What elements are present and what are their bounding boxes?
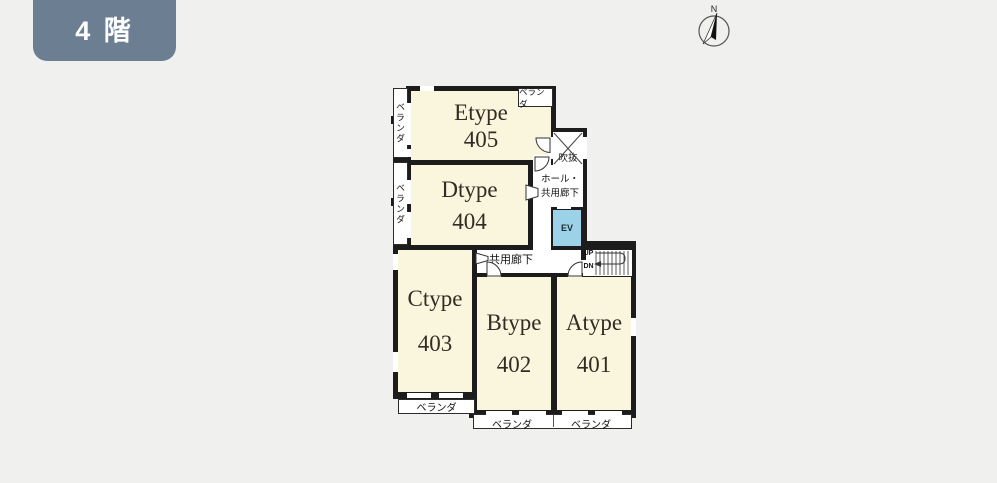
floor-plan: ベランダ ベランダ ベランダ ベランダ ベランダ ベランダ Etype 405 … <box>0 0 997 483</box>
room-401-label: Atype 401 <box>557 277 631 410</box>
hall-label-line1: ホール・ <box>541 173 579 187</box>
void-label: 吹抜 <box>553 150 583 163</box>
window <box>519 411 546 417</box>
room-405-label: Etype 405 <box>411 91 551 160</box>
unit-number: 403 <box>418 332 453 355</box>
window <box>562 411 588 417</box>
unit-type: Dtype <box>441 178 497 201</box>
unit-number: 402 <box>497 353 532 376</box>
stairs-down-label: DN <box>581 262 596 270</box>
corridor-label: 共用廊下 <box>483 251 539 266</box>
unit-type: Etype <box>454 101 508 124</box>
elevator-door <box>557 206 571 209</box>
unit-number: 405 <box>464 128 499 151</box>
window <box>407 393 431 398</box>
elevator-label: EV <box>553 210 581 246</box>
unit-type: Ctype <box>408 287 463 310</box>
balcony-label: ベランダ <box>571 416 611 431</box>
room-404-label: Dtype 404 <box>411 165 528 245</box>
room-402-label: Btype 402 <box>477 277 551 410</box>
window <box>486 411 512 417</box>
window <box>595 411 622 417</box>
balcony-label: ベランダ <box>417 399 457 414</box>
unit-number: 404 <box>452 210 487 233</box>
stairs-up-label: UP <box>581 249 596 257</box>
balcony-divider <box>553 415 554 427</box>
hall-label: ホール・ 共用廊下 <box>533 172 587 202</box>
unit-number: 401 <box>577 353 612 376</box>
page: { "page": { "floor_badge": "4 階", "compa… <box>0 0 997 483</box>
window <box>439 393 463 398</box>
room-403-label: Ctype 403 <box>398 250 472 392</box>
unit-type: Atype <box>566 311 622 334</box>
window <box>631 318 636 336</box>
unit-type: Btype <box>487 311 542 334</box>
hall-label-line2: 共用廊下 <box>541 187 579 201</box>
balcony-label: ベランダ <box>492 416 532 431</box>
balcony-south-403: ベランダ <box>398 399 475 414</box>
window <box>583 137 587 159</box>
